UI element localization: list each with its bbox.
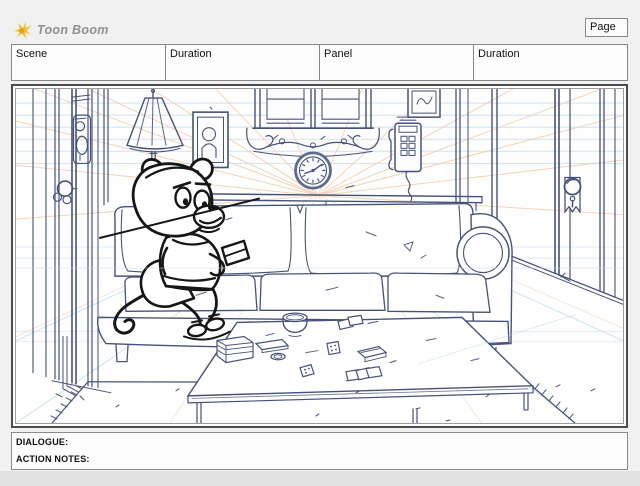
toonboom-starburst-icon bbox=[13, 21, 33, 40]
logo-text: Toon Boom bbox=[37, 23, 109, 37]
duration-field-2[interactable]: Duration bbox=[473, 45, 627, 80]
notes-box[interactable]: DIALOGUE: ACTION NOTES: bbox=[11, 432, 628, 470]
center-window bbox=[247, 89, 380, 156]
small-picture-frame bbox=[408, 89, 440, 117]
wall-phone bbox=[389, 117, 421, 201]
page-label-box: Page bbox=[585, 18, 628, 37]
duration-field-1[interactable]: Duration bbox=[165, 45, 319, 80]
left-door bbox=[33, 89, 111, 400]
fields-header-row: Scene Duration Panel Duration bbox=[11, 44, 628, 81]
panel-field[interactable]: Panel bbox=[319, 45, 473, 80]
storyboard-panel-frame bbox=[15, 88, 624, 424]
scene-field[interactable]: Scene bbox=[12, 45, 165, 80]
dialogue-label: DIALOGUE: bbox=[16, 437, 68, 447]
toonboom-logo: Toon Boom bbox=[13, 20, 109, 40]
storyboard-panel[interactable] bbox=[11, 84, 628, 428]
footer-strip bbox=[0, 471, 640, 486]
wall-clock bbox=[296, 153, 331, 188]
action-notes-label: ACTION NOTES: bbox=[16, 454, 90, 464]
storyboard-drawing bbox=[16, 89, 623, 423]
